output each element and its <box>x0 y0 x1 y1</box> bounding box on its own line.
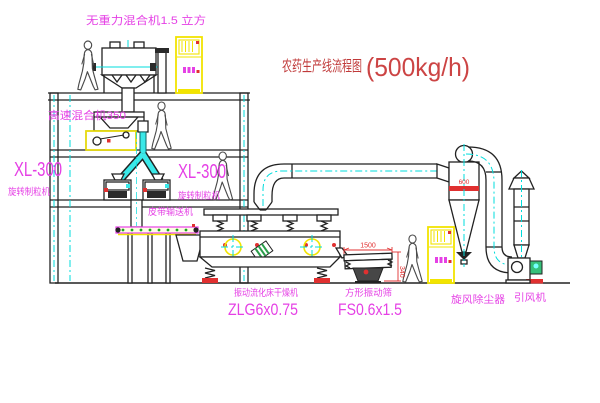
label-belt-conveyor: 皮带输送机 <box>148 206 193 218</box>
person-second-floor <box>152 102 171 149</box>
sieve-dim-height-text: 340 <box>398 266 405 278</box>
label-dryer-model: ZLG6x0.75 <box>228 300 298 319</box>
building-floor2-slab <box>50 150 248 157</box>
diagram-title: 农药生产线流程图 (500kg/h) <box>282 52 470 82</box>
exhaust-duct <box>254 164 445 210</box>
label-dryer-name: 振动流化床干燥机 <box>234 287 298 299</box>
label-granulator-model-right: XL-300 <box>178 161 226 183</box>
label-gravity-mixer: 无重力混合机1.5 立方 <box>86 13 206 27</box>
label-sieve-name: 方形振动筛 <box>345 287 392 299</box>
title-text-cn: 农药生产线流程图 <box>282 58 362 75</box>
induced-draft-fan <box>506 258 543 284</box>
fluid-bed-dryer <box>176 209 348 283</box>
cad-flow-diagram: 600 无重力混合机1.5 立方 高速混合机350 XL-300 旋转制粒机 X… <box>0 0 600 403</box>
control-cabinet-right <box>428 227 454 283</box>
sieve-dim-length-text: 1500 <box>360 243 376 250</box>
label-high-speed-mixer: 高速混合机350 <box>48 108 126 122</box>
label-fan: 引风机 <box>514 291 546 304</box>
building-roof-slab <box>48 93 250 100</box>
cyclone-dim-label: 600 <box>459 179 470 186</box>
control-cabinet-top <box>176 37 202 93</box>
diagram-drawing: 600 无重力混合机1.5 立方 高速混合机350 XL-300 旋转制粒机 X… <box>0 0 600 403</box>
label-cyclone: 旋风除尘器 <box>451 293 505 306</box>
label-granulator-name-left: 旋转制粒机 <box>8 186 50 198</box>
label-sieve-model: FS0.6x1.5 <box>338 300 402 319</box>
mixer-discharge-chute <box>122 88 134 112</box>
label-granulator-model-left: XL-300 <box>14 159 62 181</box>
label-granulator-name-right: 旋转制粒机 <box>178 190 220 202</box>
vibrating-sieve <box>344 247 401 284</box>
dryer-top-mounts <box>213 215 331 231</box>
granulator-right <box>143 174 170 200</box>
title-capacity: (500kg/h) <box>366 52 470 82</box>
